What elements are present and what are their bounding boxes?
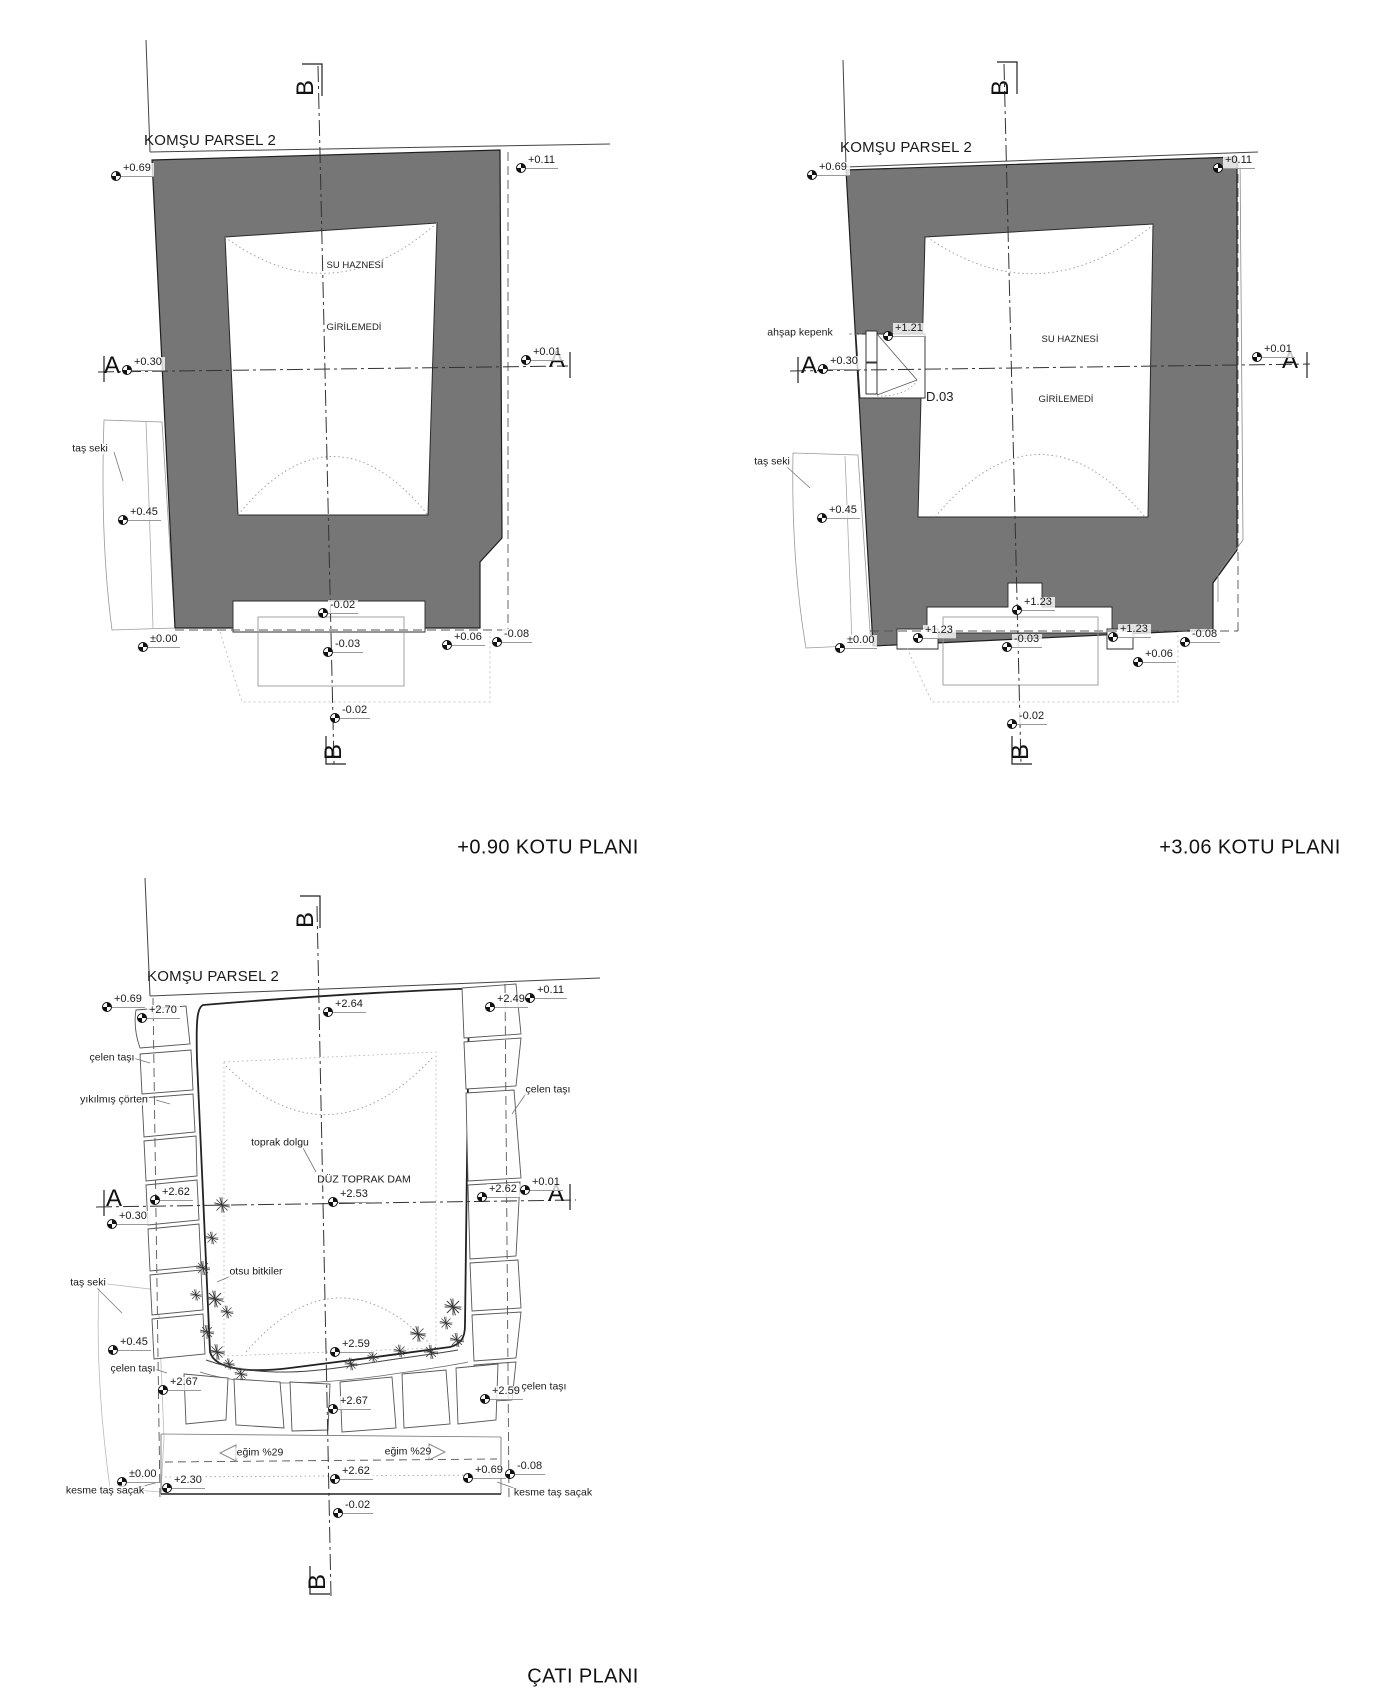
section-letter: B bbox=[322, 744, 346, 760]
text-label: çelen taşı bbox=[525, 1084, 572, 1095]
elevation-value: -0.03 bbox=[1012, 634, 1042, 648]
elevation-value: +2.62 bbox=[160, 1187, 193, 1201]
elevation-value: +0.01 bbox=[531, 347, 564, 361]
section-letter: B bbox=[306, 1574, 330, 1590]
section-letter: A bbox=[104, 354, 120, 378]
elevation-value: +0.69 bbox=[121, 163, 154, 177]
benchmark-icon bbox=[1012, 605, 1022, 615]
benchmark-icon bbox=[318, 608, 328, 618]
elevation-value: +1.23 bbox=[1022, 597, 1055, 611]
elevation-value: +2.67 bbox=[338, 1396, 371, 1410]
text-label: eğim %29 bbox=[384, 1446, 433, 1457]
text-label: kesme taş saçak bbox=[65, 1485, 145, 1496]
elevation-value: +0.69 bbox=[112, 994, 145, 1008]
text-label: taş seki bbox=[69, 1277, 107, 1288]
text-label: KOMŞU PARSEL 2 bbox=[146, 969, 280, 985]
elevation-value: +0.30 bbox=[828, 356, 861, 370]
elevation-value: -0.02 bbox=[1017, 711, 1047, 725]
benchmark-icon bbox=[1002, 642, 1012, 652]
section-letter: A bbox=[801, 354, 817, 378]
text-label: KOMŞU PARSEL 2 bbox=[839, 140, 973, 156]
benchmark-icon bbox=[525, 993, 535, 1003]
benchmark-icon bbox=[111, 171, 121, 181]
benchmark-icon bbox=[150, 1195, 160, 1205]
elevation-value: +2.53 bbox=[338, 1189, 371, 1203]
benchmark-icon bbox=[492, 637, 502, 647]
benchmark-icon bbox=[1180, 637, 1190, 647]
elevation-value: +2.70 bbox=[147, 1005, 180, 1019]
benchmark-icon bbox=[1007, 719, 1017, 729]
text-label: çelen taşı bbox=[89, 1052, 136, 1063]
benchmark-icon bbox=[107, 1219, 117, 1229]
elevation-value: +0.11 bbox=[1223, 155, 1255, 169]
elevation-value: +0.30 bbox=[117, 1211, 150, 1225]
elevation-value: -0.08 bbox=[515, 1461, 545, 1475]
elevation-value: +0.06 bbox=[1143, 649, 1176, 663]
benchmark-icon bbox=[477, 1192, 487, 1202]
benchmark-icon bbox=[521, 355, 531, 365]
elevation-value: +0.45 bbox=[118, 1337, 151, 1351]
elevation-value: -0.02 bbox=[328, 600, 358, 614]
elevation-value: +0.45 bbox=[827, 505, 860, 519]
elevation-value: +2.59 bbox=[490, 1386, 523, 1400]
elevation-value: -0.02 bbox=[343, 1500, 373, 1514]
benchmark-icon bbox=[516, 163, 526, 173]
plan1-title: +0.90 KOTU PLANI bbox=[457, 837, 638, 860]
text-label: DÜZ TOPRAK DAM bbox=[316, 1174, 412, 1185]
benchmark-icon bbox=[138, 642, 148, 652]
text-label: ahşap kepenk bbox=[766, 327, 833, 338]
benchmark-icon bbox=[330, 1474, 340, 1484]
elevation-value: +0.06 bbox=[452, 632, 485, 646]
elevation-value: ±0.00 bbox=[845, 635, 877, 649]
text-label: otsu bitkiler bbox=[228, 1266, 283, 1277]
benchmark-icon bbox=[158, 1385, 168, 1395]
benchmark-icon bbox=[1133, 657, 1143, 667]
benchmark-icon bbox=[913, 633, 923, 643]
elevation-value: +0.11 bbox=[535, 985, 567, 999]
benchmark-icon bbox=[137, 1013, 147, 1023]
benchmark-icon bbox=[330, 713, 340, 723]
elevation-value: +0.69 bbox=[817, 162, 850, 176]
text-label: taş seki bbox=[753, 456, 791, 467]
elevation-value: +0.01 bbox=[1262, 344, 1295, 358]
benchmark-icon bbox=[1108, 632, 1118, 642]
text-label: SU HAZNESİ bbox=[325, 261, 384, 271]
section-letter: B bbox=[294, 912, 318, 928]
text-label: kesme taş saçak bbox=[513, 1487, 593, 1498]
section-letter: B bbox=[294, 80, 318, 96]
benchmark-icon bbox=[162, 1483, 172, 1493]
benchmark-icon bbox=[463, 1473, 473, 1483]
benchmark-icon bbox=[102, 1002, 112, 1012]
elevation-value: +2.64 bbox=[333, 999, 366, 1013]
benchmark-icon bbox=[328, 1404, 338, 1414]
elevation-value: +2.30 bbox=[172, 1475, 205, 1489]
elevation-value: +2.62 bbox=[340, 1466, 373, 1480]
elevation-value: +2.62 bbox=[487, 1184, 520, 1198]
text-label: SU HAZNESİ bbox=[1040, 335, 1099, 345]
plan3-title: ÇATI PLANI bbox=[527, 1666, 638, 1689]
text-label: GİRİLEMEDİ bbox=[1038, 395, 1095, 405]
section-letter: B bbox=[1009, 744, 1033, 760]
elevation-value: +1.23 bbox=[1118, 624, 1151, 638]
elevation-value: +2.49 bbox=[495, 994, 528, 1008]
benchmark-icon bbox=[323, 1007, 333, 1017]
elevation-value: ±0.00 bbox=[148, 634, 180, 648]
text-label: taş seki bbox=[71, 443, 109, 454]
text-label: GİRİLEMEDİ bbox=[326, 323, 383, 333]
text-label: çelen taşı bbox=[521, 1381, 568, 1392]
elevation-value: -0.08 bbox=[502, 629, 532, 643]
elevation-value: +0.11 bbox=[526, 155, 558, 169]
elevation-value: +1.23 bbox=[923, 625, 956, 639]
benchmark-icon bbox=[505, 1469, 515, 1479]
benchmark-icon bbox=[835, 643, 845, 653]
benchmark-icon bbox=[330, 1347, 340, 1357]
section-letter: B bbox=[989, 80, 1013, 96]
benchmark-icon bbox=[328, 1197, 338, 1207]
benchmark-icon bbox=[883, 331, 893, 341]
elevation-value: +2.67 bbox=[168, 1377, 201, 1391]
benchmark-icon bbox=[323, 647, 333, 657]
text-label: eğim %29 bbox=[236, 1447, 285, 1458]
section-letter: A bbox=[106, 1187, 122, 1211]
elevation-value: +1.21 bbox=[893, 323, 926, 337]
elevation-value: +0.45 bbox=[128, 507, 161, 521]
elevation-value: -0.03 bbox=[333, 639, 363, 653]
elevation-value: +2.59 bbox=[340, 1339, 373, 1353]
benchmark-icon bbox=[485, 1002, 495, 1012]
benchmark-icon bbox=[442, 640, 452, 650]
elevation-value: -0.08 bbox=[1190, 629, 1220, 643]
text-label: D.03 bbox=[925, 390, 954, 404]
elevation-value: +0.01 bbox=[530, 1177, 563, 1191]
elevation-value: +0.69 bbox=[473, 1465, 506, 1479]
text-label: çelen taşı bbox=[110, 1363, 157, 1374]
benchmark-icon bbox=[1213, 163, 1223, 173]
drawing-canvas: +0.90 KOTU PLANI +3.06 KOTU PLANI ÇATI P… bbox=[0, 0, 1400, 1704]
benchmark-icon bbox=[818, 364, 828, 374]
benchmark-icon bbox=[122, 365, 132, 375]
elevation-value: ±0.00 bbox=[127, 1469, 159, 1483]
benchmark-icon bbox=[520, 1185, 530, 1195]
text-label: toprak dolgu bbox=[250, 1137, 310, 1148]
text-label: KOMŞU PARSEL 2 bbox=[143, 133, 277, 149]
benchmark-icon bbox=[480, 1394, 490, 1404]
benchmark-icon bbox=[108, 1345, 118, 1355]
benchmark-icon bbox=[817, 513, 827, 523]
plan2-title: +3.06 KOTU PLANI bbox=[1159, 837, 1340, 860]
benchmark-icon bbox=[333, 1508, 343, 1518]
elevation-value: +0.30 bbox=[132, 357, 165, 371]
benchmark-icon bbox=[118, 515, 128, 525]
elevation-value: -0.02 bbox=[340, 705, 370, 719]
benchmark-icon bbox=[1252, 352, 1262, 362]
benchmark-icon bbox=[807, 170, 817, 180]
text-label: yıkılmış çörten bbox=[79, 1094, 149, 1105]
